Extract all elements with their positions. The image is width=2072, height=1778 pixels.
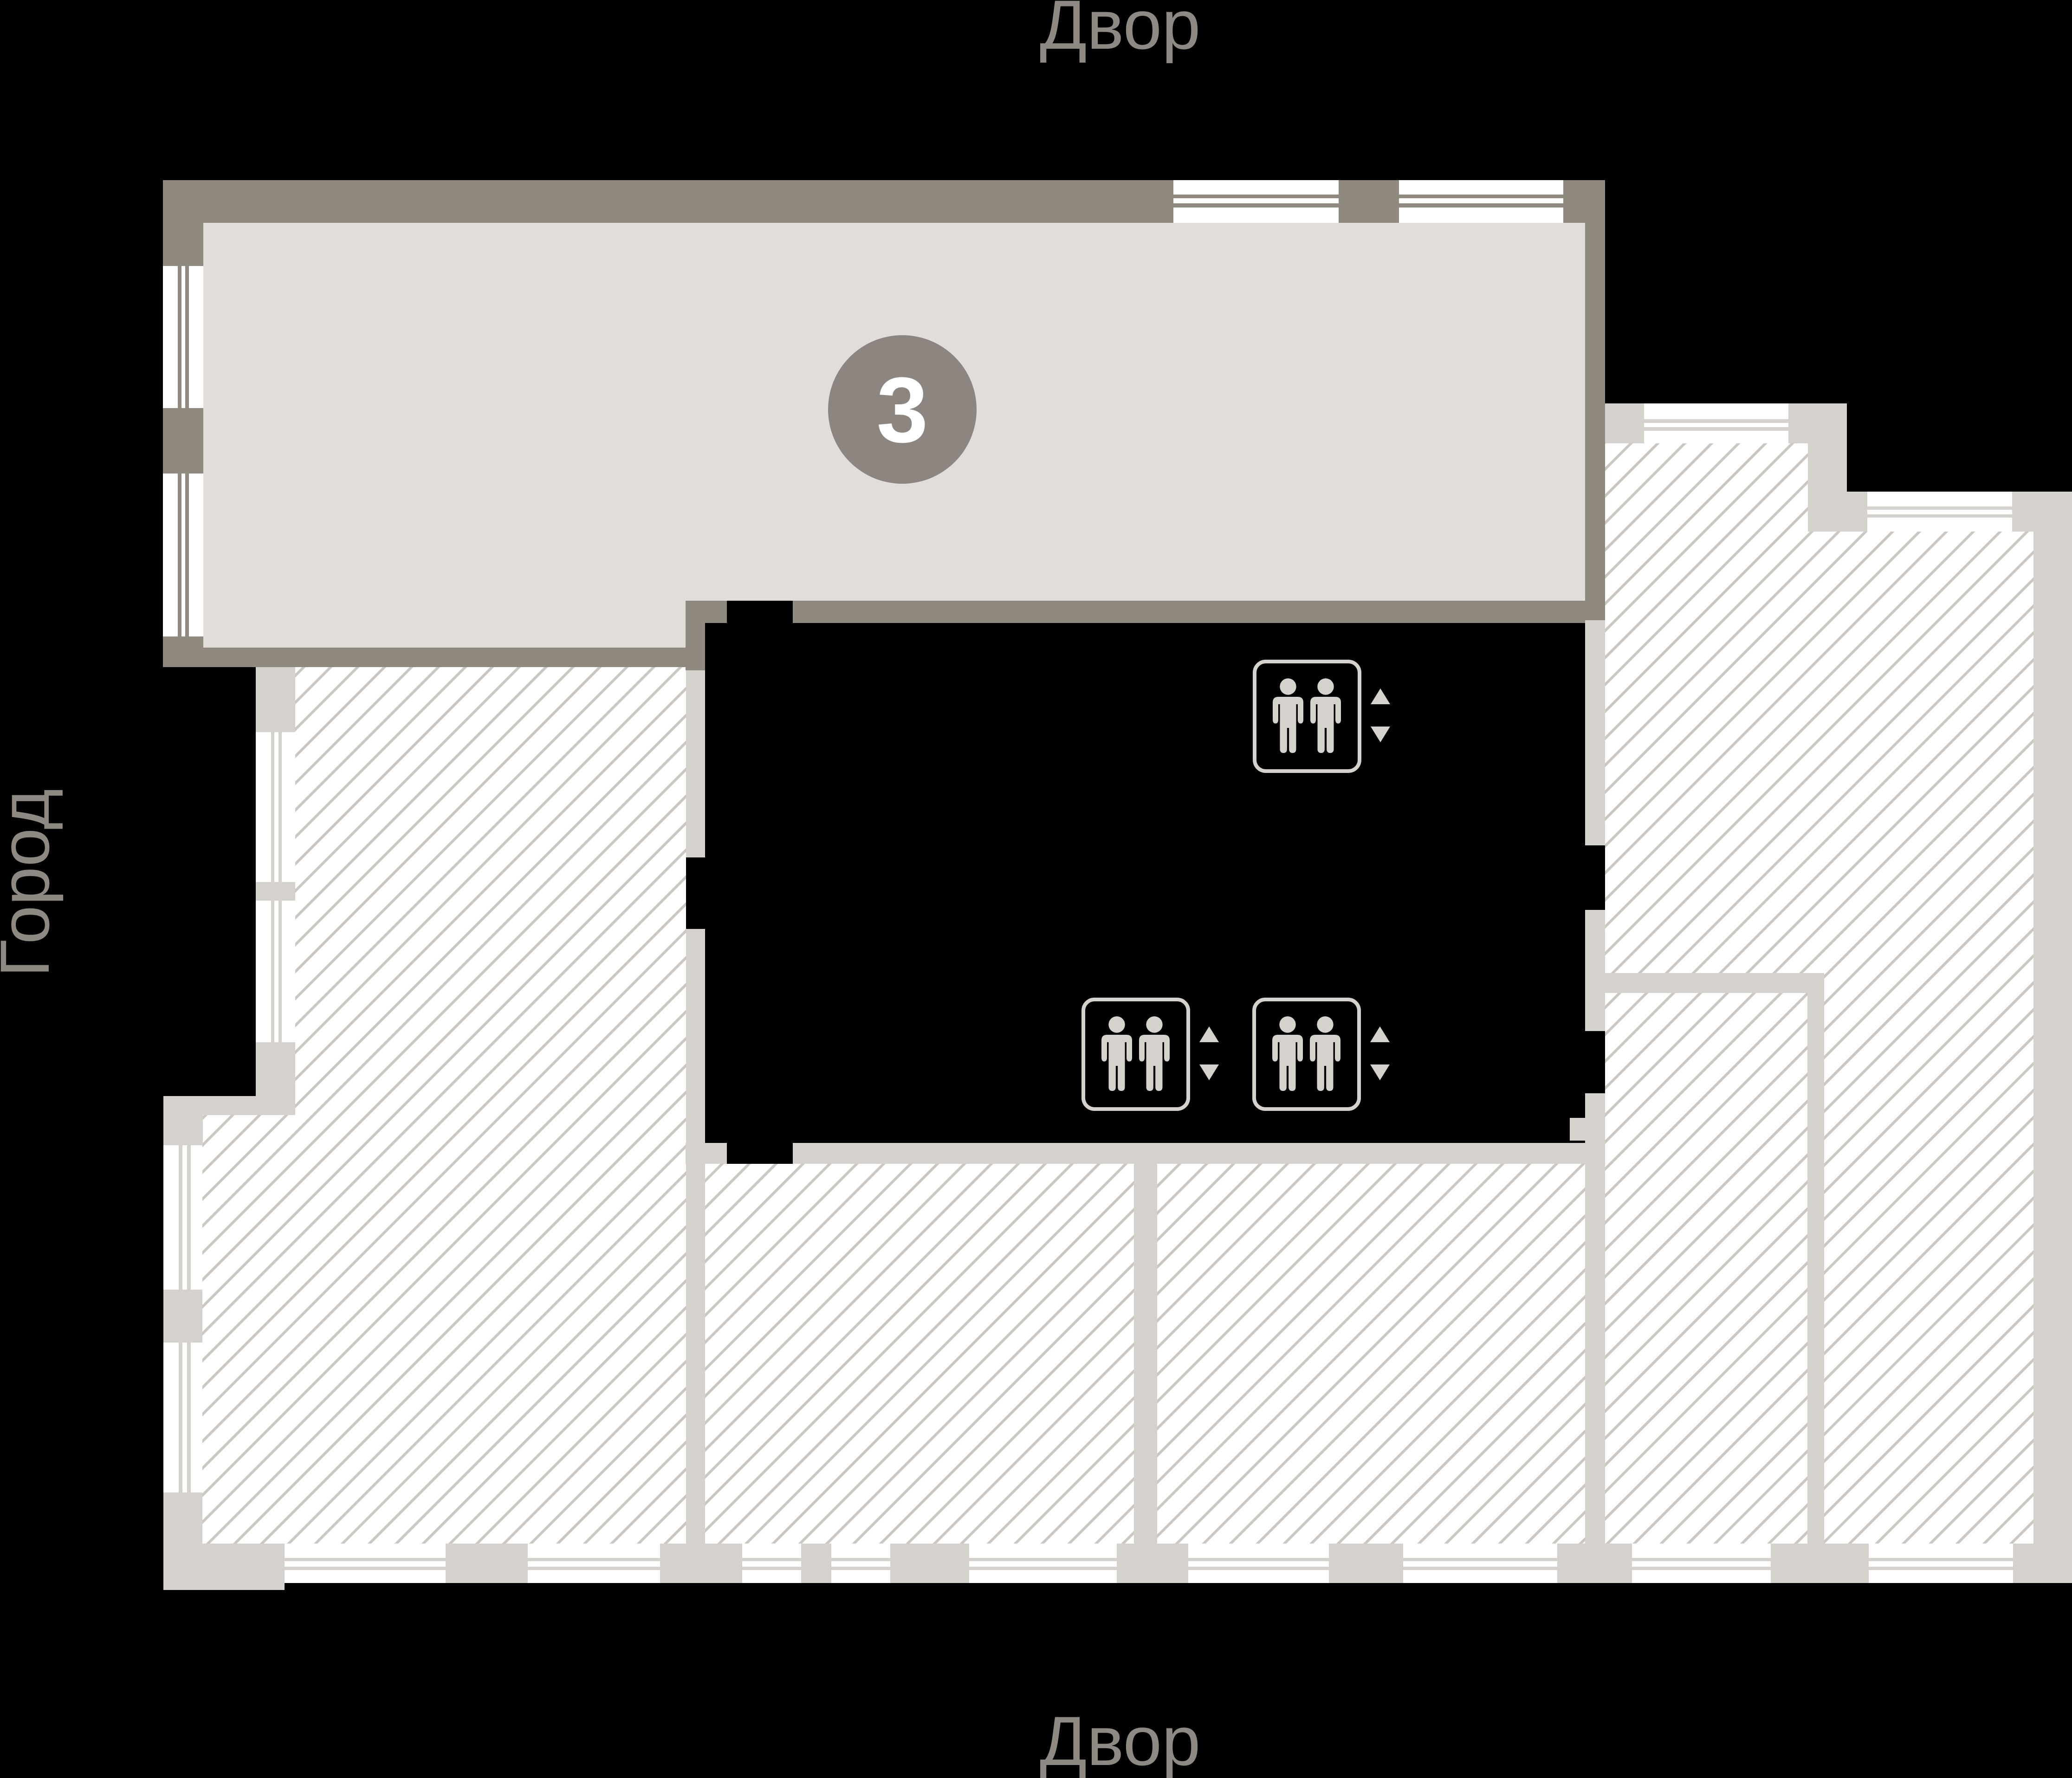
svg-text:3: 3 <box>876 358 928 462</box>
svg-text:Город: Город <box>0 789 64 977</box>
svg-text:Двор: Двор <box>1040 1702 1200 1778</box>
svg-text:Двор: Двор <box>1040 0 1200 64</box>
